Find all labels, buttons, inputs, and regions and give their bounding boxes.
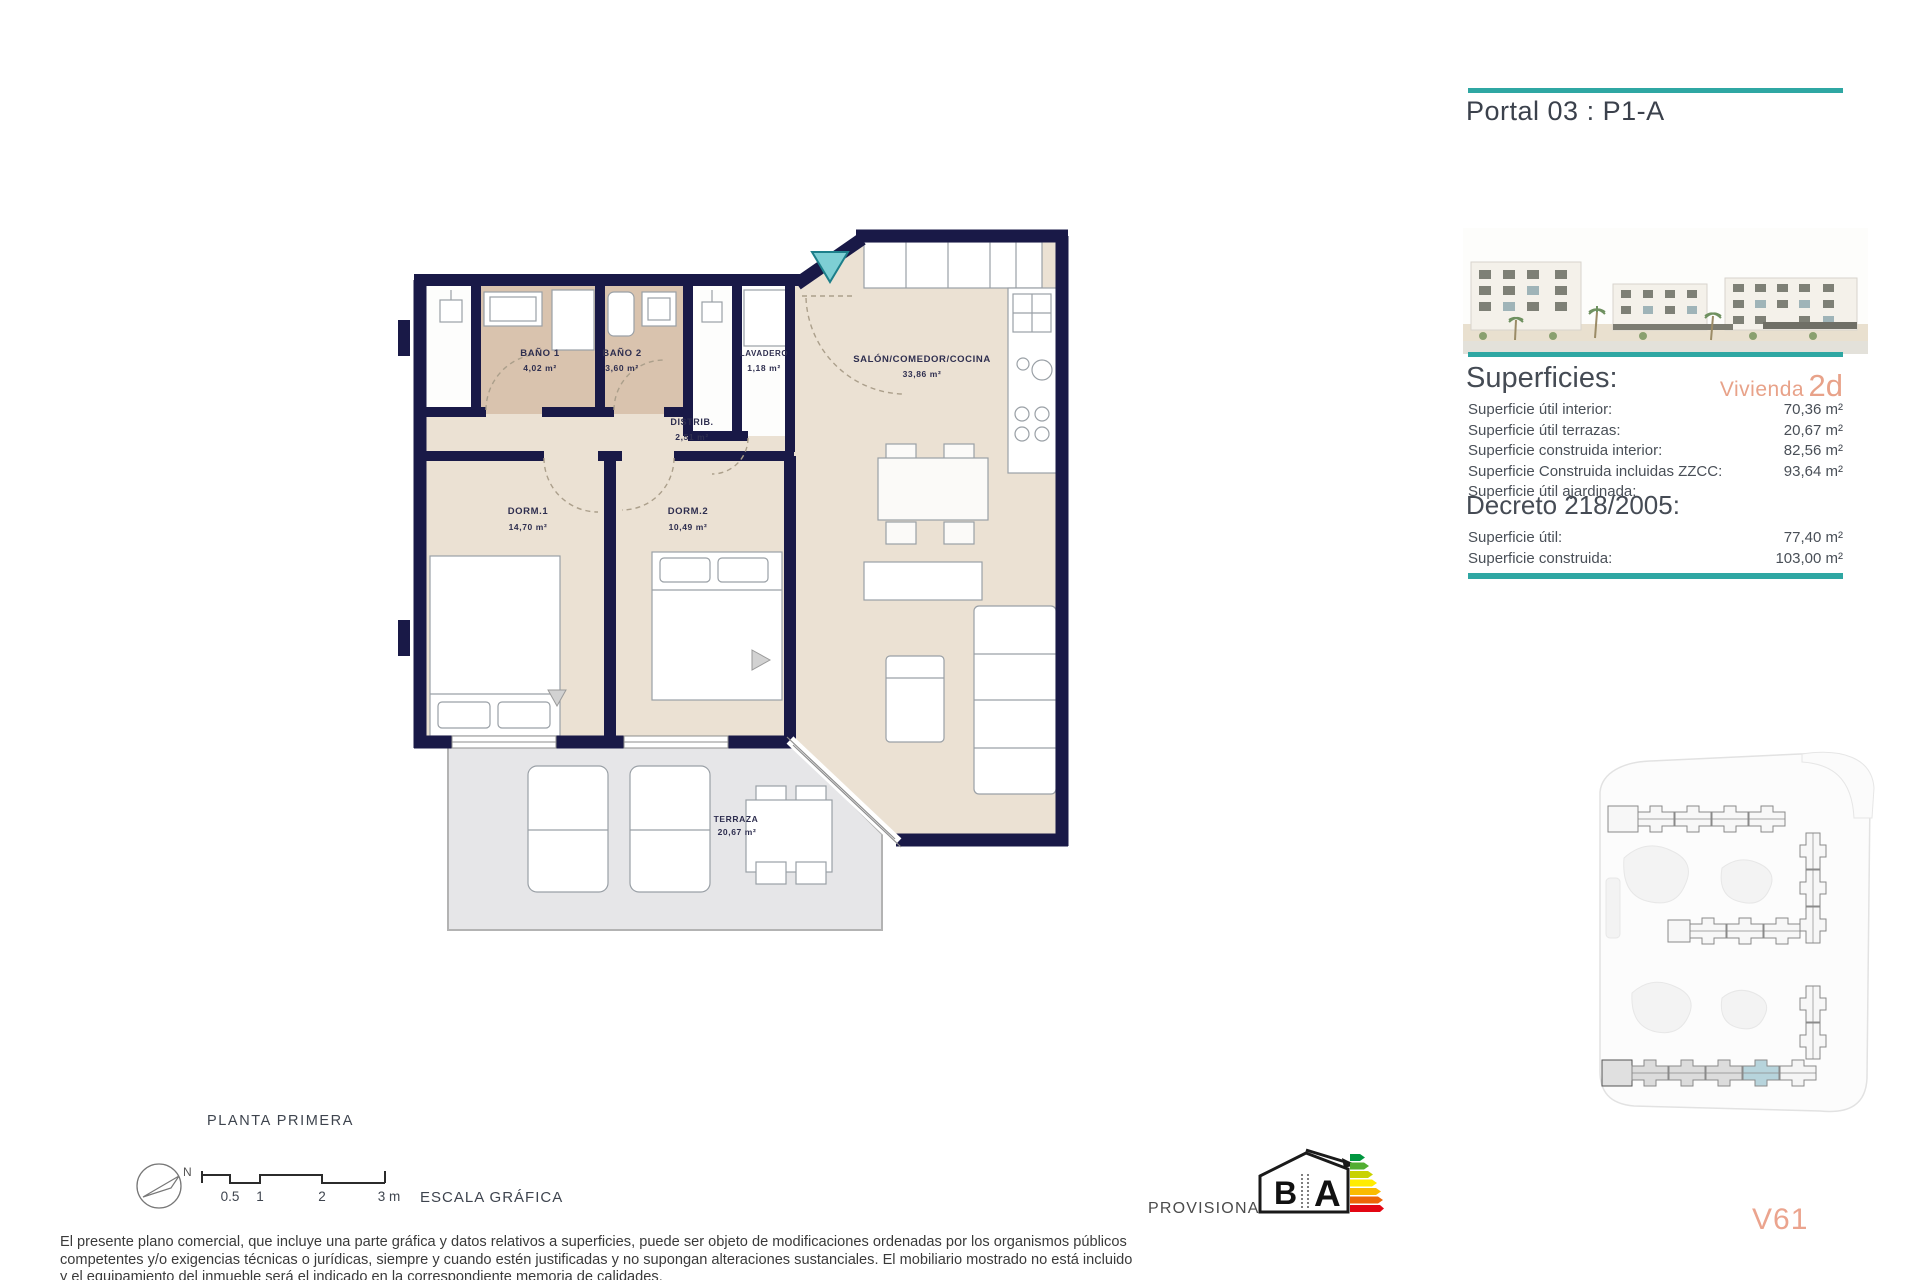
vivienda-label: Vivienda — [1720, 378, 1804, 401]
row-label: Superficie Construida incluidas ZZCC: — [1468, 462, 1722, 483]
north-label: N — [183, 1165, 192, 1179]
room-label-dorm2: DORM.2 — [668, 506, 709, 517]
row-value: 77,40 m² — [1784, 528, 1843, 549]
scale-tick: 3 m — [378, 1189, 401, 1204]
room-label-salon: SALÓN/COMEDOR/COCINA — [853, 353, 991, 365]
wall-pilaster — [398, 320, 410, 356]
floor-plan: BAÑO 1 4,02 m² BAÑO 2 3,60 m² LAVADERO 1… — [385, 215, 1085, 945]
scale-label: ESCALA GRÁFICA — [420, 1189, 563, 1206]
room-area-distrib: 2,51 m² — [675, 432, 709, 442]
plan-sheet: BAÑO 1 4,02 m² BAÑO 2 3,60 m² LAVADERO 1… — [0, 0, 1920, 1280]
energy-letter-b: B — [1274, 1175, 1297, 1211]
row-value: 70,36 m² — [1784, 400, 1843, 421]
site-plan — [1572, 748, 1902, 1136]
disclaimer-line: competentes y/o exigencias técnicas o ju… — [60, 1252, 1210, 1270]
building-render-image — [1463, 228, 1868, 354]
table-row: Superficie construida: 103,00 m² — [1468, 549, 1843, 570]
decreto-heading: Decreto 218/2005: — [1466, 490, 1680, 521]
energy-rating-icon: B A — [1252, 1146, 1384, 1224]
vivienda-badge: Vivienda 2d — [1560, 368, 1843, 404]
room-label-distrib: DISTRIB. — [670, 417, 713, 427]
divider-middle — [1468, 352, 1843, 357]
row-label: Superficie útil: — [1468, 528, 1562, 549]
room-area-bano2: 3,60 m² — [605, 363, 639, 373]
superficies-table: Superficie útil interior: 70,36 m² Super… — [1468, 400, 1843, 503]
page-title: Portal 03 : P1-A — [1466, 96, 1665, 127]
room-area-salon: 33,86 m² — [903, 369, 942, 379]
room-area-lavadero: 1,18 m² — [747, 363, 781, 373]
table-row: Superficie útil terrazas: 20,67 m² — [1468, 421, 1843, 442]
row-value: 82,56 m² — [1784, 441, 1843, 462]
energy-letter-a: A — [1314, 1173, 1341, 1214]
clipped-text-fragment: . .. . — [1650, 584, 1740, 593]
table-row: Superficie construida interior: 82,56 m² — [1468, 441, 1843, 462]
room-label-lavadero: LAVADERO — [740, 349, 789, 358]
room-label-bano1: BAÑO 1 — [520, 348, 560, 359]
row-value: 93,64 m² — [1784, 462, 1843, 483]
divider-bottom — [1468, 573, 1843, 579]
table-row: Superficie útil: 77,40 m² — [1468, 528, 1843, 549]
row-value: 20,67 m² — [1784, 421, 1843, 442]
disclaimer-line: El presente plano comercial, que incluye… — [60, 1234, 1210, 1252]
north-arrow-icon: N — [125, 1152, 205, 1216]
row-label: Superficie útil interior: — [1468, 400, 1612, 421]
room-area-bano1: 4,02 m² — [523, 363, 557, 373]
disclaimer-line: y el equipamiento del inmueble será el i… — [60, 1269, 1210, 1280]
row-label: Superficie construida interior: — [1468, 441, 1662, 462]
row-label: Superficie construida: — [1468, 549, 1612, 570]
divider-top — [1468, 88, 1843, 93]
scale-tick: 1 — [256, 1189, 264, 1204]
decreto-table: Superficie útil: 77,40 m² Superficie con… — [1468, 528, 1843, 569]
room-label-terraza: TERRAZA — [714, 814, 759, 824]
room-label-bano2: BAÑO 2 — [602, 348, 642, 359]
building-stack-1 — [1800, 833, 1826, 943]
disclaimer-text: El presente plano comercial, que incluye… — [60, 1234, 1210, 1280]
table-row: Superficie Construida incluidas ZZCC: 93… — [1468, 462, 1843, 483]
scale-bar: 0.5 1 2 3 m — [196, 1168, 416, 1210]
room-area-dorm1: 14,70 m² — [509, 522, 548, 532]
row-label: Superficie útil terrazas: — [1468, 421, 1621, 442]
energy-scale-bars — [1350, 1154, 1384, 1212]
wall-pilaster — [398, 620, 410, 656]
scale-tick: 2 — [318, 1189, 326, 1204]
scale-tick: 0.5 — [221, 1189, 240, 1204]
vivienda-value: 2d — [1809, 368, 1843, 403]
table-row: Superficie útil interior: 70,36 m² — [1468, 400, 1843, 421]
room-area-terraza: 20,67 m² — [718, 827, 757, 837]
floor-label: PLANTA PRIMERA — [207, 1113, 354, 1129]
room-area-dorm2: 10,49 m² — [669, 522, 708, 532]
row-value: 103,00 m² — [1775, 549, 1843, 570]
unit-code: V61 — [1752, 1203, 1808, 1237]
room-label-dorm1: DORM.1 — [508, 506, 549, 517]
